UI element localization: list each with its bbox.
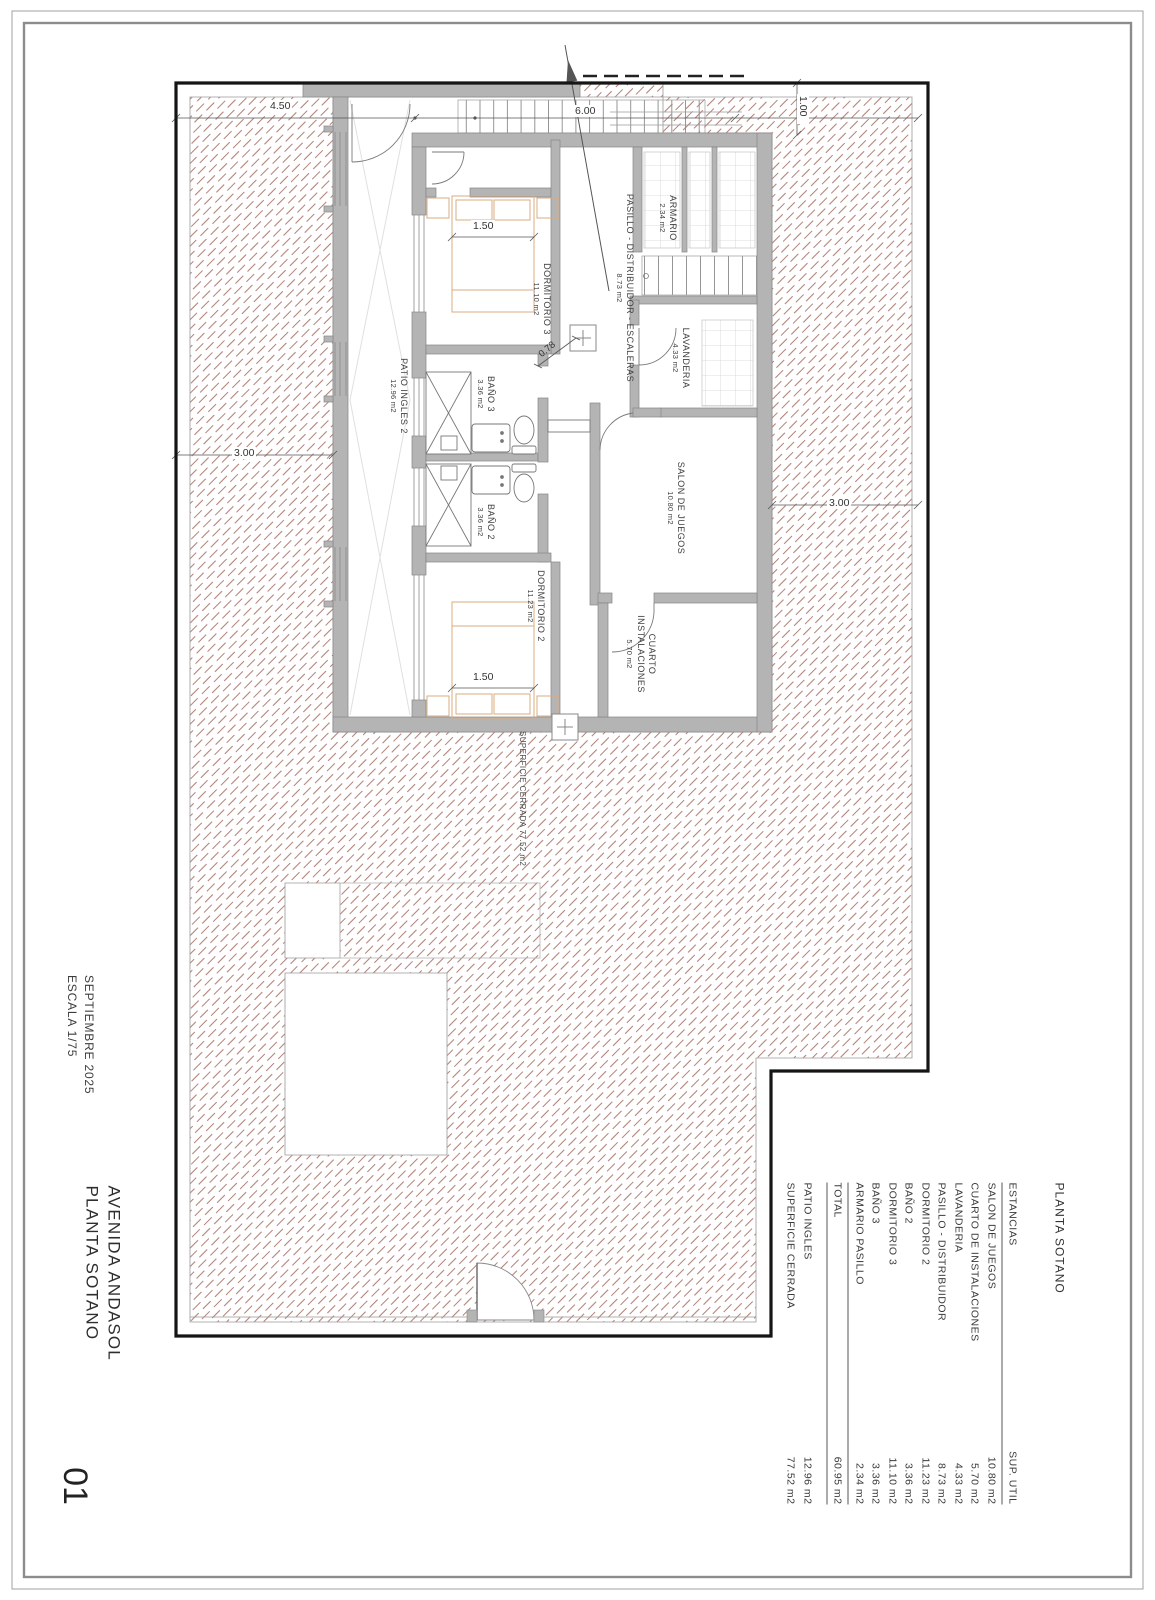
schedule-row: BAÑO 33.36 m2	[868, 1183, 885, 1505]
room-label-lavanderia: LAVANDERIA4.33 m2	[669, 315, 693, 401]
dim-1-00: 1.00	[797, 94, 809, 124]
room-label-dormitorio-3: DORMITORIO 311.10 m2	[530, 251, 554, 347]
dim-1-50-dorm2: 1.50	[471, 671, 495, 683]
superficie-cerrada-label: SUPERFICIE CERRADA 77.52 m2	[515, 731, 527, 881]
room-label-salon: SALON DE JUEGOS10.80 m2	[664, 453, 688, 563]
schedule-extra-row: SUPERFICIE CERRADA77.52 m2	[783, 1183, 800, 1505]
dim-3-00-right: 3.00	[827, 497, 851, 509]
project-name: AVENIDA ANDASOL	[103, 1186, 125, 1391]
stairs-top	[458, 100, 742, 133]
room-label-armario: ARMARIO2.34 m2	[656, 163, 680, 273]
sheet-title: PLANTA SOTANO	[81, 1186, 103, 1391]
scale-text: ESCALA 1/75	[63, 975, 80, 1085]
room-label-pasillo: PASILLO - DISTRIBUIDOR - ESCALERAS8.73 m…	[612, 168, 638, 408]
schedule-extra-row: PATIO INGLES12.96 m2	[799, 1183, 816, 1505]
dim-4-50: 4.50	[268, 100, 292, 112]
schedule-row: BAÑO 23.36 m2	[901, 1183, 918, 1505]
titleblock-date-scale: SEPTIEMBRE 2025 ESCALA 1/75	[63, 975, 97, 1085]
room-label-patio-ingles: PATIO INGLES 212.96 m2	[387, 341, 411, 451]
dim-1-50-dorm3: 1.50	[471, 220, 495, 232]
titleblock-project: AVENIDA ANDASOL PLANTA SOTANO	[81, 1186, 125, 1391]
schedule-row: PASILLO - DISTRIBUIDOR8.73 m2	[934, 1183, 951, 1505]
plan-sheet: PASILLO - DISTRIBUIDOR - ESCALERAS8.73 m…	[0, 0, 1155, 1600]
room-schedule-table: PLANTA SOTANO ESTANCIAS SUP. UTIL SALON …	[782, 1183, 1067, 1505]
date-text: SEPTIEMBRE 2025	[80, 975, 97, 1085]
dim-6-00: 6.00	[573, 105, 597, 117]
schedule-title: PLANTA SOTANO	[1053, 1183, 1067, 1505]
schedule-row: ARMARIO PASILLO2.34 m2	[851, 1183, 868, 1505]
schedule-total-row: TOTAL60.95 m2	[830, 1183, 847, 1505]
schedule-col-name: ESTANCIAS	[1005, 1183, 1021, 1246]
schedule-header: ESTANCIAS SUP. UTIL	[1005, 1183, 1021, 1505]
schedule-col-area: SUP. UTIL	[1005, 1451, 1021, 1504]
schedule-row: CUARTO DE INSTALACIONES5.70 m2	[967, 1183, 984, 1505]
room-label-bano-3: BAÑO 33.36 m2	[474, 362, 498, 426]
schedule-row: DORMITORIO 311.10 m2	[884, 1183, 901, 1505]
room-label-dormitorio-2: DORMITORIO 211.23 m2	[524, 558, 548, 654]
sheet-number: 01	[55, 1461, 95, 1511]
schedule-row: SALON DE JUEGOS10.80 m2	[983, 1183, 1000, 1505]
room-label-cuarto-instalaciones: CUARTOINSTALACIONES5.70 m2	[622, 599, 660, 709]
schedule-row: DORMITORIO 211.23 m2	[917, 1183, 934, 1505]
dim-3-00-left: 3.00	[232, 447, 256, 459]
room-label-bano-2: BAÑO 23.36 m2	[474, 490, 498, 554]
schedule-row: LAVANDERIA4.33 m2	[950, 1183, 967, 1505]
